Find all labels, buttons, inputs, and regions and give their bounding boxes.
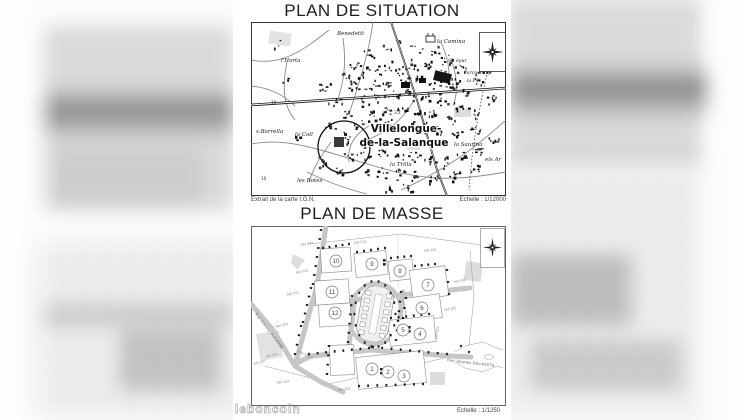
blurred-background-right <box>511 0 750 420</box>
lot-number: 7 <box>426 282 430 289</box>
compass-box <box>480 33 506 72</box>
spot-height: 3,2 <box>394 110 401 115</box>
lot-marker: 2 <box>382 366 394 378</box>
spot-height: 10 <box>261 176 267 181</box>
map-source-note: Extrait de la carte I.G.N. <box>251 197 315 203</box>
listing-photo: PLAN DE SITUATION <box>0 0 750 420</box>
place-label: els Ar <box>485 157 502 163</box>
lot-number: 5 <box>401 327 405 334</box>
map-scale-note: Echelle : 1/1250 <box>457 408 500 414</box>
watermark-text: leboncoin <box>235 402 301 416</box>
map-scale-note: Echelle : 1/12000 <box>460 197 506 203</box>
lot-marker: 4 <box>414 328 426 340</box>
place-label: l'Horta <box>281 58 301 64</box>
place-label: la Comina <box>437 39 465 45</box>
lot-marker: 5 <box>397 324 409 336</box>
blur-fade <box>0 0 233 420</box>
lot-marker: 8 <box>394 265 406 277</box>
lot-number: 8 <box>398 268 402 275</box>
lot-marker: 3 <box>398 370 410 382</box>
situation-title: PLAN DE SITUATION <box>233 1 511 21</box>
masse-title: PLAN DE MASSE <box>233 204 511 224</box>
lot-number: 2 <box>386 369 390 376</box>
lot-number: 9 <box>370 261 374 268</box>
place-label: Benedetti <box>336 31 364 37</box>
place-label: la Saurina <box>454 142 483 148</box>
lot-number: 4 <box>418 331 422 338</box>
lot-marker: 7 <box>422 279 434 291</box>
place-label: St. épur <box>448 57 468 64</box>
plan-sheet: PLAN DE SITUATION <box>233 0 511 420</box>
blurred-background-left <box>0 0 233 420</box>
lot-marker: 1 <box>366 363 378 375</box>
lot-number: 1 <box>370 366 374 373</box>
situation-captions: Extrait de la carte I.G.N. Echelle : 1/1… <box>251 197 506 203</box>
spot-height: 10 <box>271 100 277 105</box>
lot-marker: 6 <box>416 302 428 314</box>
lot-marker: 10 <box>330 255 342 267</box>
lot-number: 12 <box>332 310 339 317</box>
blur-fade <box>511 0 750 420</box>
lot-number: 3 <box>402 373 406 380</box>
situation-map: Benedetti l'Horta la Comina St. épur Par… <box>251 22 506 196</box>
lot-number: 6 <box>420 305 424 312</box>
place-label: la Trilla <box>390 162 412 168</box>
svg-text:de-la-Salanque: de-la-Salanque <box>360 137 449 149</box>
lot-marker: 12 <box>329 307 341 319</box>
lot-marker: 9 <box>366 258 378 270</box>
masse-map: 123456789101112 AM 344 AM 515 AM 335 AM … <box>251 226 506 406</box>
watermark: leboncoin <box>233 400 333 418</box>
svg-text:Villelongue-: Villelongue- <box>371 123 442 135</box>
place-label: la Pile <box>467 78 482 84</box>
compass-box <box>481 229 505 268</box>
lot-number: 11 <box>329 289 336 296</box>
place-label: la Coll <box>295 132 313 138</box>
lot-marker: 11 <box>326 286 338 298</box>
place-label: les Rotes <box>297 178 323 184</box>
place-label: s.Barrella <box>256 129 283 135</box>
lot-number: 10 <box>333 258 340 265</box>
